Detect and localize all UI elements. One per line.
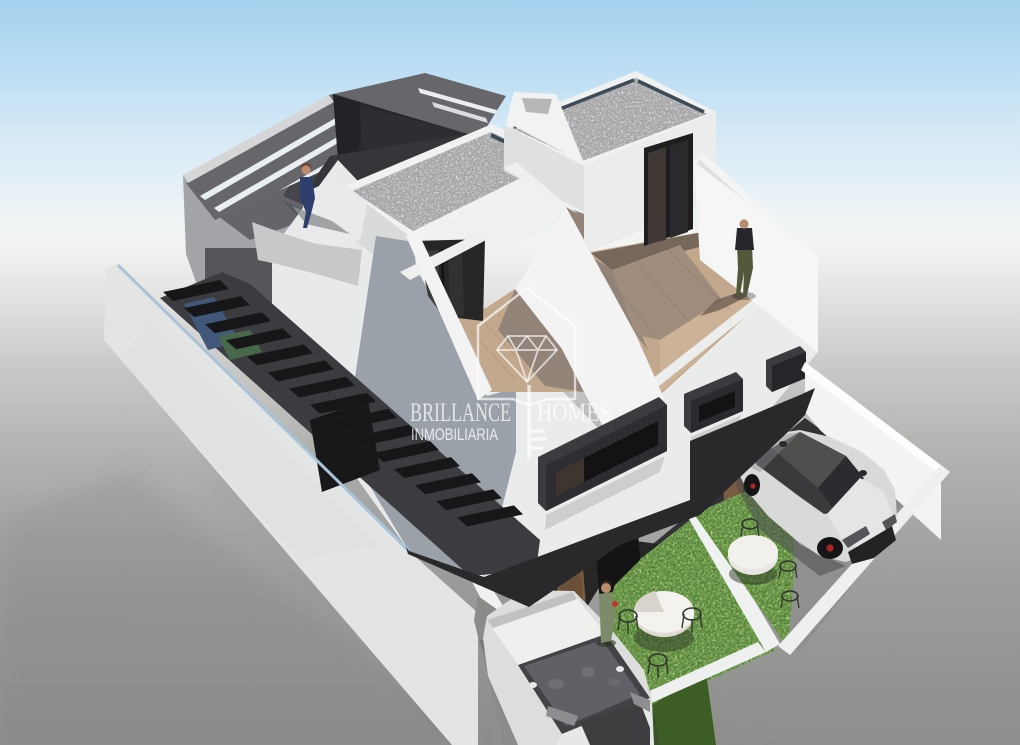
svg-text:INMOBILIARIA: INMOBILIARIA xyxy=(411,425,498,444)
svg-text:HOMES: HOMES xyxy=(537,398,611,427)
svg-text:BRILLANCE: BRILLANCE xyxy=(410,398,511,427)
